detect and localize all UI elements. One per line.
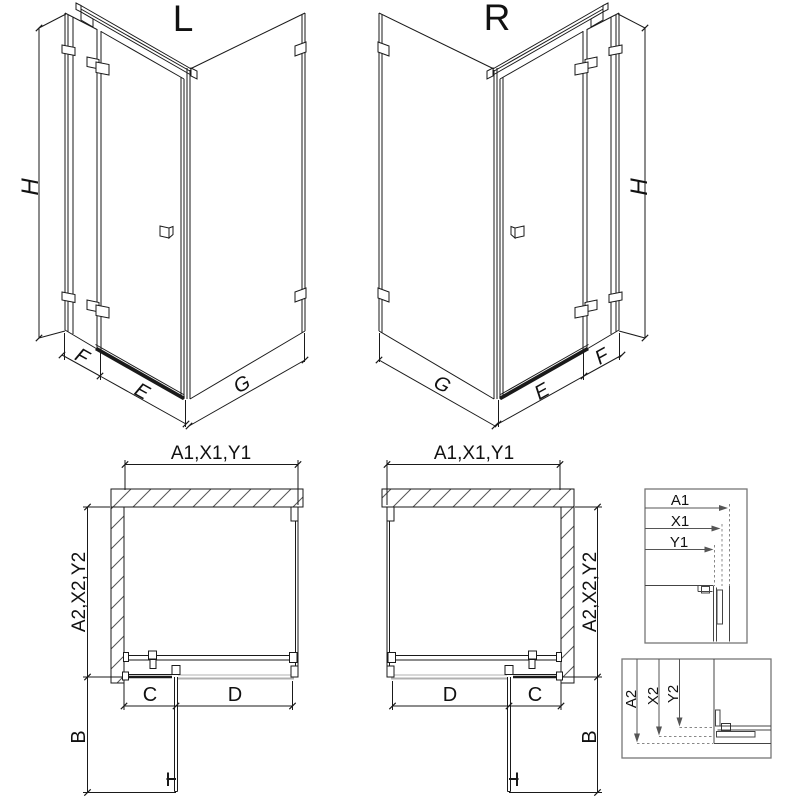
arrow-y1-head: [705, 547, 714, 553]
bar-end-cap: [76, 3, 81, 12]
glass-wall-bracket: [291, 507, 298, 521]
plan-view-right: [382, 460, 602, 796]
dim-label-e-right: E: [531, 379, 554, 405]
detail-box-width-measures: [645, 489, 747, 643]
wall-clip: [295, 42, 306, 56]
bar-end-cap: [191, 68, 197, 79]
glass-corner-bracket: [387, 666, 394, 677]
arrow-y2-head: [677, 718, 683, 727]
handle-knob: [169, 227, 173, 239]
dim-label-g-right: G: [430, 371, 454, 398]
wall-clip: [378, 42, 389, 56]
profile-section: [717, 590, 723, 624]
bar-end-block: [124, 653, 129, 662]
detail-label-x2: X2: [645, 687, 662, 705]
dim-label-f-left: F: [71, 344, 94, 370]
clamp-section: [702, 587, 710, 594]
extension-line: [39, 331, 65, 338]
dim-label-g-left: G: [230, 371, 254, 398]
side-wall-top-edge: [379, 13, 494, 69]
plan-view-left: [83, 460, 303, 796]
wall-left-hatched: [561, 507, 574, 683]
wall-profile: [123, 672, 129, 680]
bar-end-cap: [487, 68, 493, 79]
bar-end-block: [388, 653, 396, 663]
bar-clamp: [529, 660, 535, 669]
handle-knob: [511, 227, 515, 239]
dimension-tick: [492, 423, 498, 429]
plan-label-depth-right: A2,X2,Y2: [580, 552, 601, 632]
arrow-a1-head: [719, 505, 728, 511]
bar-clamp: [149, 651, 157, 659]
dim-label-e-left: E: [131, 379, 154, 405]
door-pivot: [505, 666, 513, 675]
arrow-x2-head: [656, 727, 662, 736]
dim-label-d-right: D: [443, 684, 457, 706]
wall-top-hatched: [111, 489, 303, 507]
profile-section: [717, 732, 756, 738]
door-pivot: [172, 666, 180, 675]
bar-end-block: [290, 653, 298, 663]
door-top-edge: [500, 32, 583, 80]
door-hinge: [575, 62, 588, 75]
bracket-section: [716, 710, 721, 726]
wall-left-hatched: [111, 507, 124, 683]
glass-corner-bracket: [291, 666, 298, 677]
iso-right-title: R: [484, 0, 511, 38]
door-hinge: [96, 62, 109, 75]
door-top-edge: [101, 32, 184, 80]
extension-line: [619, 331, 645, 338]
diagram-page: LRHHFEGGEFA1,X1,Y1A1,X1,Y1A2,X2,Y2A2,X2,…: [0, 0, 800, 800]
detail-label-x1: X1: [671, 513, 689, 530]
extension-line: [618, 14, 645, 28]
dim-label-h-right: H: [626, 178, 653, 196]
door-hinge: [96, 305, 109, 318]
glass-wall-bracket: [387, 507, 394, 521]
side-wall-top-edge: [190, 13, 305, 69]
plan-label-width-right: A1,X1,Y1: [434, 443, 514, 464]
handle-knob: [160, 226, 169, 238]
detail-label-y2: Y2: [665, 685, 682, 703]
shower-enclosure-dimension-diagram: LRHHFEGGEFA1,X1,Y1A1,X1,Y1A2,X2,Y2A2,X2,…: [0, 0, 800, 800]
detail-label-a1: A1: [671, 492, 689, 509]
bar-clamp: [150, 660, 156, 669]
detail-box-depth-measures: [622, 659, 771, 758]
extension-line: [39, 14, 66, 28]
handle-knob: [515, 226, 524, 238]
wall-clip: [295, 288, 306, 302]
plan-label-depth-left: A2,X2,Y2: [69, 552, 90, 632]
arrow-x1-head: [712, 526, 721, 532]
bar-end-block: [557, 653, 562, 662]
detail-label-y1: Y1: [670, 534, 688, 551]
detail-box-frame: [645, 489, 747, 643]
bar-end-cap: [603, 3, 608, 12]
dim-label-c-left: C: [143, 684, 157, 706]
bar-clamp: [529, 651, 537, 659]
dim-label-d-left: D: [228, 684, 242, 706]
plan-label-width-left: A1,X1,Y1: [171, 443, 251, 464]
dim-label-b-left: B: [68, 730, 90, 743]
wall-profile: [557, 672, 563, 680]
wall-top-hatched: [382, 489, 574, 507]
dim-label-h-left: H: [17, 178, 44, 196]
door-hinge: [575, 305, 588, 318]
dim-label-c-right: C: [528, 684, 542, 706]
arrow-a2-head: [634, 734, 640, 743]
iso-left-title: L: [173, 0, 194, 39]
wall-clip: [378, 288, 389, 302]
dim-label-f-right: F: [591, 343, 614, 369]
dim-label-b-right: B: [579, 730, 601, 743]
detail-label-a2: A2: [623, 690, 640, 708]
